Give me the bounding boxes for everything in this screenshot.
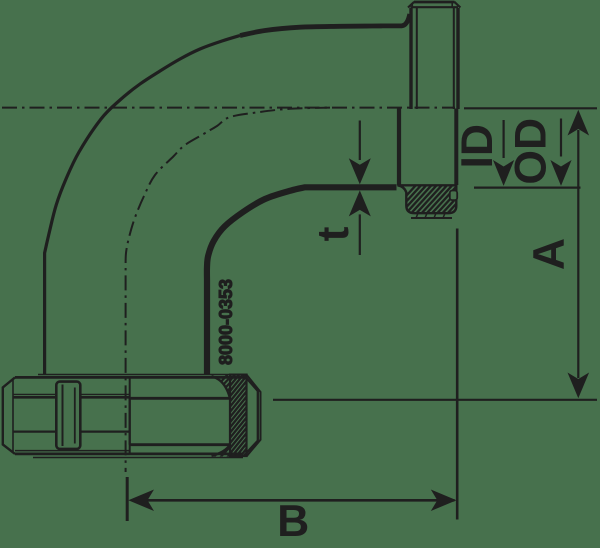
svg-text:8000-0353: 8000-0353 [216,279,236,365]
svg-text:ID: ID [453,124,502,169]
svg-text:OD: OD [507,118,556,185]
svg-text:B: B [277,497,309,546]
svg-text:A: A [525,238,574,270]
svg-text:t: t [309,226,358,241]
